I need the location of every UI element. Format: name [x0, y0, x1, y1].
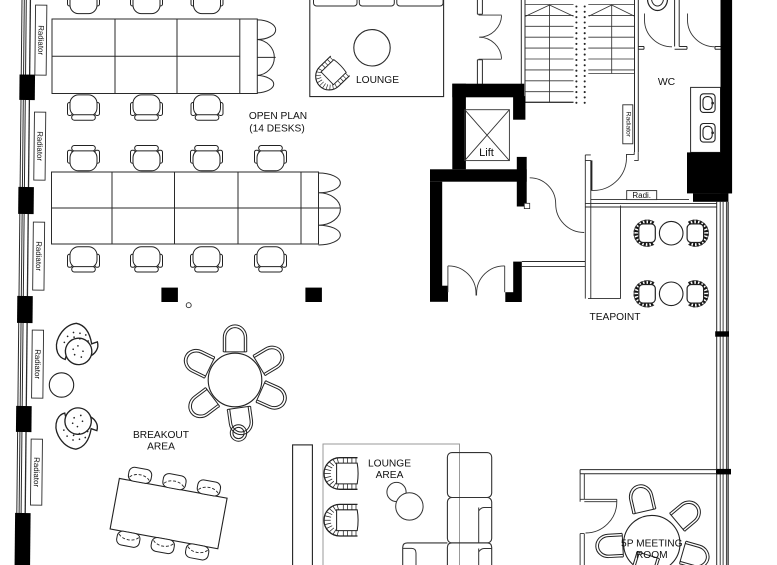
svg-text:Radiator: Radiator [33, 349, 42, 379]
svg-text:AREA: AREA [376, 470, 404, 481]
svg-text:LOUNGE: LOUNGE [356, 75, 399, 86]
svg-text:5P MEETING: 5P MEETING [621, 539, 683, 550]
svg-text:Radiator: Radiator [32, 457, 41, 487]
svg-text:BREAKOUT: BREAKOUT [133, 430, 189, 441]
svg-text:TEAPOINT: TEAPOINT [590, 312, 641, 323]
svg-text:Radi.: Radi. [632, 191, 651, 200]
svg-text:ROOM: ROOM [636, 550, 668, 561]
svg-text:Lift: Lift [479, 147, 494, 159]
svg-text:OPEN PLAN: OPEN PLAN [249, 111, 307, 122]
svg-text:LOUNGE: LOUNGE [368, 459, 411, 470]
svg-text:Radiator: Radiator [34, 241, 43, 271]
svg-text:Radiator: Radiator [35, 131, 44, 161]
svg-text:(14 DESKS): (14 DESKS) [249, 124, 304, 135]
svg-text:WC: WC [658, 77, 676, 88]
svg-text:AREA: AREA [147, 441, 175, 452]
svg-text:Radiator: Radiator [624, 112, 631, 138]
svg-text:Radiator: Radiator [36, 25, 45, 55]
